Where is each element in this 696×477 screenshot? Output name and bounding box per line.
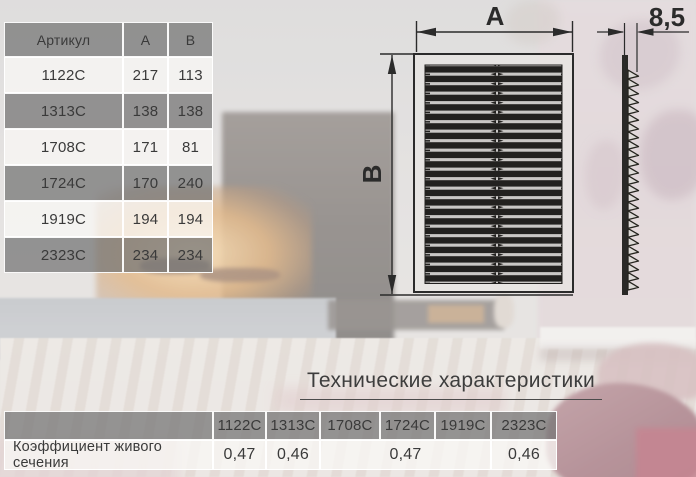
side-profile-teeth (628, 70, 639, 290)
infographic-canvas: Артикул A B 1122C 217 113 1313C 138 138 … (0, 0, 696, 477)
spec-value-a: 138 (123, 93, 168, 129)
spec-article: 1919C (4, 201, 123, 237)
spec-col-header-a: A (123, 22, 168, 57)
spec-value-b: 234 (168, 237, 213, 273)
grille-side-view (622, 55, 639, 295)
spec-value-a: 217 (123, 57, 168, 93)
dim-a-arrow-left (417, 28, 436, 36)
grille-front-view (414, 54, 573, 292)
tech-col-header: 1724C (380, 411, 435, 440)
tech-col-header: 2323C (491, 411, 557, 440)
tech-specs-title: Технические характеристики (300, 369, 602, 400)
spec-value-b: 113 (168, 57, 213, 93)
tech-value: 0,47 (213, 440, 266, 470)
spec-col-header-article: Артикул (4, 22, 123, 57)
tech-col-header: 1919C (435, 411, 491, 440)
dim-depth-arrow-left (608, 28, 625, 36)
dim-a-arrow-right (553, 28, 572, 36)
spec-value-b: 194 (168, 201, 213, 237)
tech-specs-table: 1122C 1313C 1708C 1724C 1919C 2323C Коэф… (4, 411, 557, 470)
spec-value-a: 171 (123, 129, 168, 165)
dim-depth-label: 8,5 (649, 2, 685, 32)
tech-corner-cell (4, 411, 213, 440)
spec-article: 1122C (4, 57, 123, 93)
spec-article: 1724C (4, 165, 123, 201)
spec-article: 1313C (4, 93, 123, 129)
dim-b-arrow-bottom (388, 275, 396, 294)
tech-col-header: 1313C (266, 411, 320, 440)
tech-col-header: 1122C (213, 411, 266, 440)
tech-value: 0,46 (491, 440, 557, 470)
tech-value-span: 0,47 (320, 440, 491, 470)
grille-technical-drawing: A B 8,5 (360, 0, 696, 332)
spec-value-a: 194 (123, 201, 168, 237)
tech-col-header: 1708C (320, 411, 380, 440)
spec-value-a: 234 (123, 237, 168, 273)
side-profile-bar (622, 55, 628, 295)
dim-a-label: A (486, 1, 505, 31)
tech-row-label: Коэффициент живого сечения (4, 440, 213, 470)
spec-value-a: 170 (123, 165, 168, 201)
spec-value-b: 138 (168, 93, 213, 129)
spec-value-b: 81 (168, 129, 213, 165)
spec-value-b: 240 (168, 165, 213, 201)
tech-value: 0,46 (266, 440, 320, 470)
article-dimensions-table: Артикул A B 1122C 217 113 1313C 138 138 … (4, 22, 213, 273)
spec-article: 1708C (4, 129, 123, 165)
dim-b-arrow-top (388, 55, 396, 74)
spec-col-header-b: B (168, 22, 213, 57)
louver-panel (425, 65, 562, 284)
spec-article: 2323C (4, 237, 123, 273)
dim-b-label: B (360, 165, 387, 184)
